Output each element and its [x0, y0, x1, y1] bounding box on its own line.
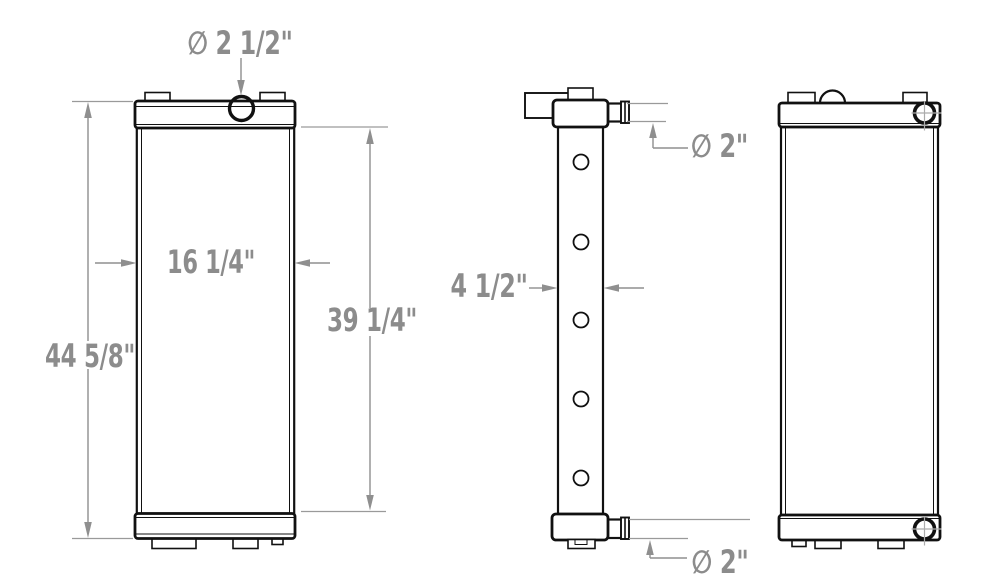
arrowhead-up	[84, 102, 92, 118]
arrowhead-down	[84, 522, 92, 538]
rear-filler-neck-bump	[820, 91, 845, 104]
rear-view	[779, 91, 942, 549]
dim-label-top-outlet: ∅ 2"	[691, 127, 748, 165]
mounting-hole	[574, 313, 589, 328]
front-bottom-tab-right	[233, 539, 258, 549]
rear-top-tab-left	[788, 93, 815, 104]
mounting-hole	[574, 235, 589, 250]
front-view	[135, 93, 295, 549]
mounting-hole	[574, 155, 589, 170]
mounting-hole	[574, 392, 589, 407]
dim-core-depth: 4 1/2"	[451, 267, 645, 305]
front-bottom-tab-left	[152, 539, 196, 549]
arrowhead-down	[237, 80, 245, 96]
dim-label-core-height: 39 1/4"	[327, 301, 417, 339]
dim-label-bottom-outlet: ∅ 2"	[692, 543, 749, 579]
dim-overall-height: 44 5/8"	[45, 102, 135, 539]
arrowhead-left	[295, 259, 311, 267]
rear-core	[781, 127, 938, 515]
arrowhead-right	[121, 259, 137, 267]
dim-label-core-depth: 4 1/2"	[451, 267, 528, 305]
arrowhead-up	[649, 123, 657, 138]
front-top-tank	[135, 101, 295, 128]
front-core	[137, 128, 294, 514]
arrowhead-up	[366, 128, 374, 144]
dim-top-outlet-diameter: ∅ 2"	[627, 104, 748, 166]
arrowhead-left	[604, 284, 620, 292]
side-top-tank	[553, 100, 608, 127]
arrowhead-right	[542, 284, 558, 292]
drawing-canvas: ∅ 2 1/2" 44 5/8" 16 1/4" 39 1/4" 4 1/2"	[0, 0, 994, 579]
dim-label-overall-height: 44 5/8"	[45, 337, 135, 375]
side-view	[525, 88, 629, 549]
dim-label-filler-diameter: ∅ 2 1/2"	[188, 24, 293, 62]
mounting-hole	[574, 471, 589, 486]
dim-core-height: 39 1/4"	[301, 127, 417, 512]
radiator-drawing: ∅ 2 1/2" 44 5/8" 16 1/4" 39 1/4" 4 1/2"	[0, 0, 994, 579]
arrowhead-down	[366, 495, 374, 511]
dim-bottom-outlet-diameter: ∅ 2"	[629, 520, 750, 579]
arrowhead-up	[646, 540, 654, 555]
dim-label-core-width: 16 1/4"	[167, 243, 255, 281]
dim-filler-neck-diameter: ∅ 2 1/2"	[188, 24, 293, 96]
side-bottom-tank	[552, 514, 608, 540]
